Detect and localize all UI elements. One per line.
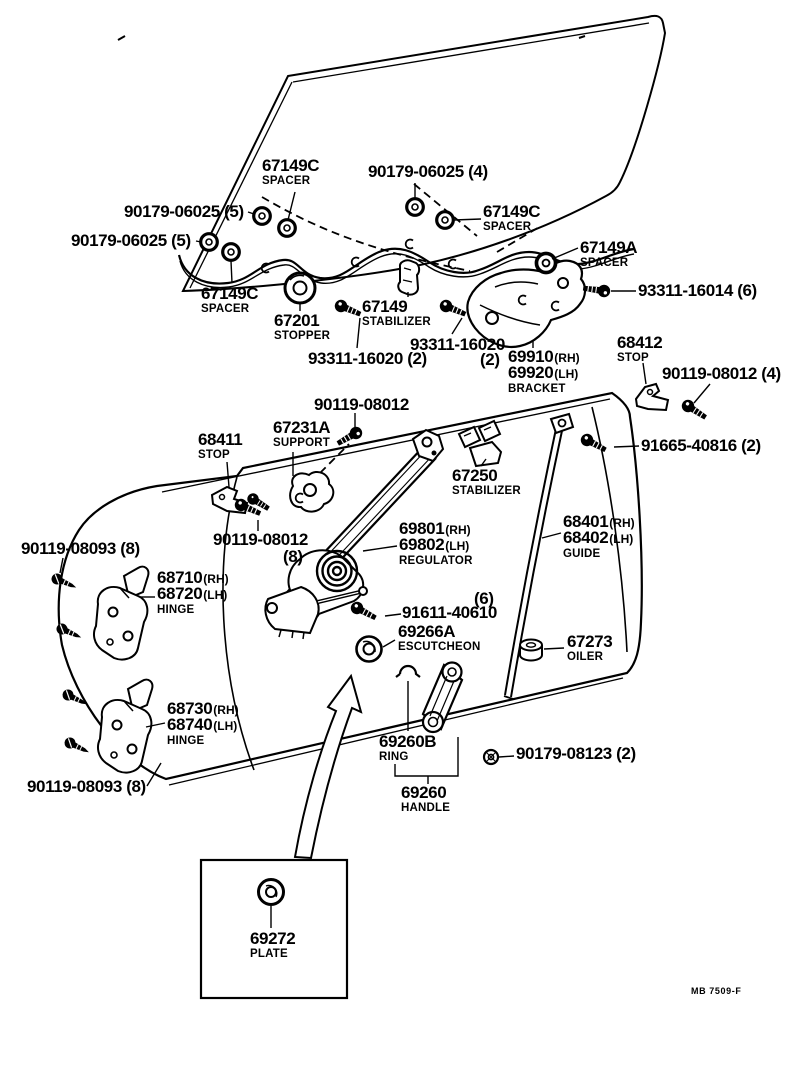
- side-tag: (LH): [203, 588, 227, 603]
- label-ring-69260b: 69260B RING: [379, 734, 436, 763]
- screws: [50, 572, 92, 757]
- label-hinge-upper: 68710(RH) 68720(LH) HINGE: [157, 570, 229, 616]
- part-number: 67149C: [262, 158, 319, 173]
- part-number: 91611-40610: [402, 605, 497, 620]
- label-93311-16020-right-qty: (2): [480, 352, 500, 367]
- label-spacer-67149a: 67149A SPACER: [580, 240, 637, 269]
- part-name: PLATE: [250, 948, 295, 960]
- part-number: 90179-06025 (5): [71, 233, 191, 248]
- part-number: 68720: [157, 586, 202, 601]
- part-number: 67149A: [580, 240, 637, 255]
- quantity: (8): [283, 549, 303, 564]
- part-name: GUIDE: [563, 548, 635, 560]
- label-90119-08093-top: 90119-08093 (8): [21, 541, 140, 556]
- part-number: 69260B: [379, 734, 436, 749]
- part-number: 90119-08012 (4): [662, 366, 781, 381]
- part-number: 90179-06025 (4): [368, 164, 488, 179]
- part-number: 90119-08012: [213, 532, 308, 547]
- label-stabilizer-67149: 67149 STABILIZER: [362, 299, 431, 328]
- label-90119-08012-4: 90119-08012 (4): [662, 366, 781, 381]
- part-name: STOP: [617, 352, 662, 364]
- label-90119-08012-8-qty: (8): [283, 549, 303, 564]
- part-number: 90179-06025 (5): [124, 204, 244, 219]
- part-number: 67149: [362, 299, 431, 314]
- label-support-67231a: 67231A SUPPORT: [273, 420, 330, 449]
- part-number: 69260: [401, 785, 450, 800]
- label-90119-08012-center: 90119-08012: [314, 397, 409, 412]
- label-stop-68411: 68411 STOP: [198, 432, 242, 461]
- part-number: 69272: [250, 931, 295, 946]
- label-plate-69272: 69272 PLATE: [250, 931, 295, 960]
- label-91611-40610: 91611-40610: [402, 605, 497, 620]
- part-name: STOPPER: [274, 330, 330, 342]
- stopper-grommet: [285, 273, 315, 303]
- handle-ring: [396, 666, 420, 677]
- part-number: 67250: [452, 468, 521, 483]
- part-name: BRACKET: [508, 383, 580, 395]
- part-name: SPACER: [483, 221, 540, 233]
- side-tag: (LH): [445, 539, 469, 554]
- quantity: (2): [480, 352, 500, 367]
- label-90119-08093-bottom: 90119-08093 (8): [27, 779, 146, 794]
- side-tag: (RH): [445, 523, 470, 538]
- support-67231a: [290, 472, 333, 512]
- hinge-lower: [98, 680, 152, 773]
- part-number: 67149C: [201, 286, 258, 301]
- part-number: 69920: [508, 365, 553, 380]
- part-name: SPACER: [262, 175, 319, 187]
- part-name: HINGE: [167, 735, 239, 747]
- part-number: 68740: [167, 717, 212, 732]
- part-number-row: 68740(LH): [167, 717, 239, 733]
- label-90119-08012-8: 90119-08012: [213, 532, 308, 547]
- part-number: 68730: [167, 701, 212, 716]
- part-number: 68412: [617, 335, 662, 350]
- part-name: SPACER: [201, 303, 258, 315]
- oiler: [520, 640, 542, 661]
- part-name: SUPPORT: [273, 437, 330, 449]
- side-tag: (RH): [554, 351, 579, 366]
- label-regulator-69801: 69801(RH) 69802(LH) REGULATOR: [399, 521, 473, 567]
- part-name: REGULATOR: [399, 555, 473, 567]
- screw-90179-08123: [484, 750, 498, 764]
- pointer-arrow: [295, 676, 361, 858]
- label-stop-68412: 68412 STOP: [617, 335, 662, 364]
- part-name: STABILIZER: [362, 316, 431, 328]
- part-number: 69910: [508, 349, 553, 364]
- part-number: 67149C: [483, 204, 540, 219]
- label-spacer-67149c-low: 67149C SPACER: [201, 286, 258, 315]
- part-number-row: 68720(LH): [157, 586, 229, 602]
- escutcheon: [357, 637, 382, 662]
- part-number: 90179-08123 (2): [516, 746, 636, 761]
- label-handle-69260: 69260 HANDLE: [401, 785, 450, 814]
- label-91665-40816: 91665-40816 (2): [641, 438, 761, 453]
- label-spacer-67149c-right: 67149C SPACER: [483, 204, 540, 233]
- label-guide-68401: 68401(RH) 68402(LH) GUIDE: [563, 514, 635, 560]
- part-number: 68710: [157, 570, 202, 585]
- side-tag: (RH): [213, 703, 238, 718]
- part-name: STABILIZER: [452, 485, 521, 497]
- label-90179-06025-5a: 90179-06025 (5): [124, 204, 244, 219]
- label-spacer-67149c-top: 67149C SPACER: [262, 158, 319, 187]
- label-stabilizer-67250: 67250 STABILIZER: [452, 468, 521, 497]
- part-number: 68401: [563, 514, 608, 529]
- part-number: 91665-40816 (2): [641, 438, 761, 453]
- part-number: 93311-16020 (2): [308, 351, 427, 366]
- label-escutcheon-69266a: 69266A ESCUTCHEON: [398, 624, 481, 653]
- label-bracket-69910: 69910(RH) 69920(LH) BRACKET: [508, 349, 580, 395]
- part-name: HINGE: [157, 604, 229, 616]
- part-number: 90119-08093 (8): [27, 779, 146, 794]
- part-number-row: 69920(LH): [508, 365, 580, 381]
- part-number: 67273: [567, 634, 612, 649]
- part-number: 93311-16014 (6): [638, 283, 757, 298]
- part-number: 68402: [563, 530, 608, 545]
- part-number: 68411: [198, 432, 242, 447]
- stop-68412: [636, 384, 668, 410]
- part-name: SPACER: [580, 257, 637, 269]
- part-number: 69266A: [398, 624, 481, 639]
- label-stopper-67201: 67201 STOPPER: [274, 313, 330, 342]
- side-tag: (RH): [609, 516, 634, 531]
- label-90179-06025-4: 90179-06025 (4): [368, 164, 488, 179]
- label-hinge-lower: 68730(RH) 68740(LH) HINGE: [167, 701, 239, 747]
- part-name: HANDLE: [401, 802, 450, 814]
- drawing-code: MB 7509-F: [691, 986, 741, 996]
- part-name: ESCUTCHEON: [398, 641, 481, 653]
- label-90179-06025-5b: 90179-06025 (5): [71, 233, 191, 248]
- label-93311-16014: 93311-16014 (6): [638, 283, 757, 298]
- hinge-upper: [94, 567, 148, 660]
- part-number-row: 69802(LH): [399, 537, 473, 553]
- side-tag: (LH): [609, 532, 633, 547]
- part-number: 69801: [399, 521, 444, 536]
- part-name: OILER: [567, 651, 612, 663]
- part-number: 67201: [274, 313, 330, 328]
- part-number: 90119-08093 (8): [21, 541, 140, 556]
- part-number: 90119-08012: [314, 397, 409, 412]
- side-tag: (RH): [203, 572, 228, 587]
- window-handle: [423, 663, 462, 733]
- side-tag: (LH): [213, 719, 237, 734]
- stabilizer-67149: [398, 260, 419, 294]
- part-name: RING: [379, 751, 436, 763]
- part-number-row: 68402(LH): [563, 530, 635, 546]
- part-name: STOP: [198, 449, 242, 461]
- label-90179-08123: 90179-08123 (2): [516, 746, 636, 761]
- label-93311-16020-left: 93311-16020 (2): [308, 351, 427, 366]
- part-number: 69802: [399, 537, 444, 552]
- parts-diagram-page: { "theme": {"ink": "#000000", "paper": "…: [0, 0, 800, 1086]
- label-oiler-67273: 67273 OILER: [567, 634, 612, 663]
- part-number: 67231A: [273, 420, 330, 435]
- stabilizer-67250: [459, 421, 501, 466]
- side-tag: (LH): [554, 367, 578, 382]
